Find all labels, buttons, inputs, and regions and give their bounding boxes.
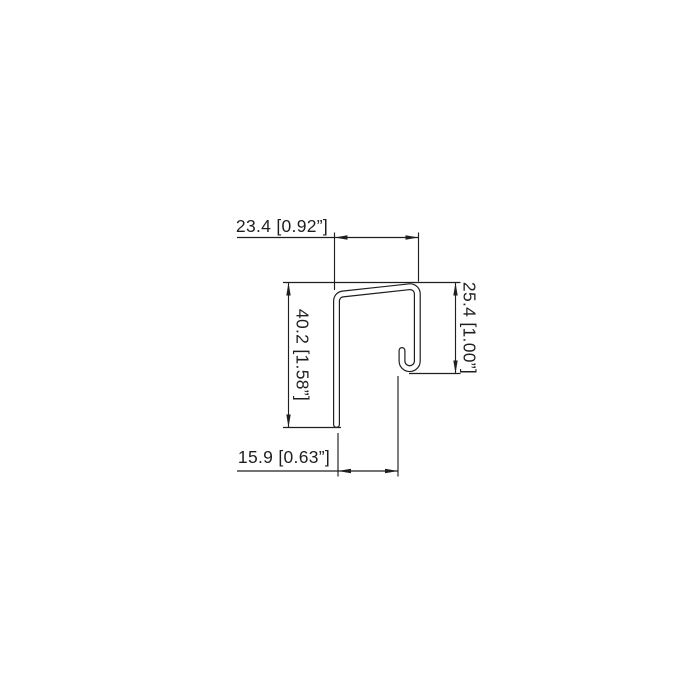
arrowhead-down-icon xyxy=(453,361,457,374)
arrowhead-down-icon xyxy=(286,415,290,428)
arrowhead-up-icon xyxy=(453,283,457,296)
drawing-canvas: 23.4 [0.92”] 25.4 [1.00”] 40.2 [1.58”] 1… xyxy=(0,0,700,700)
profile-drawing: 23.4 [0.92”] 25.4 [1.00”] 40.2 [1.58”] 1… xyxy=(0,0,700,700)
profile-outline-outer xyxy=(336,287,417,425)
dimension-left-height: 40.2 [1.58”] xyxy=(283,283,341,428)
dimension-label-top-width: 23.4 [0.92”] xyxy=(236,216,328,236)
arrowhead-left-icon xyxy=(338,469,351,473)
profile-cross-section xyxy=(336,287,417,425)
dimension-bottom-width: 15.9 [0.63”] xyxy=(237,376,398,477)
dimension-label-left-height: 40.2 [1.58”] xyxy=(293,309,313,401)
dimension-label-right-height: 25.4 [1.00”] xyxy=(460,282,480,374)
arrowhead-right-icon xyxy=(406,235,419,239)
dimension-top-width: 23.4 [0.92”] xyxy=(236,216,419,290)
arrowhead-up-icon xyxy=(286,283,290,296)
dimension-label-bottom-width: 15.9 [0.63”] xyxy=(238,447,330,467)
arrowhead-right-icon xyxy=(385,469,398,473)
arrowhead-left-icon xyxy=(335,235,348,239)
